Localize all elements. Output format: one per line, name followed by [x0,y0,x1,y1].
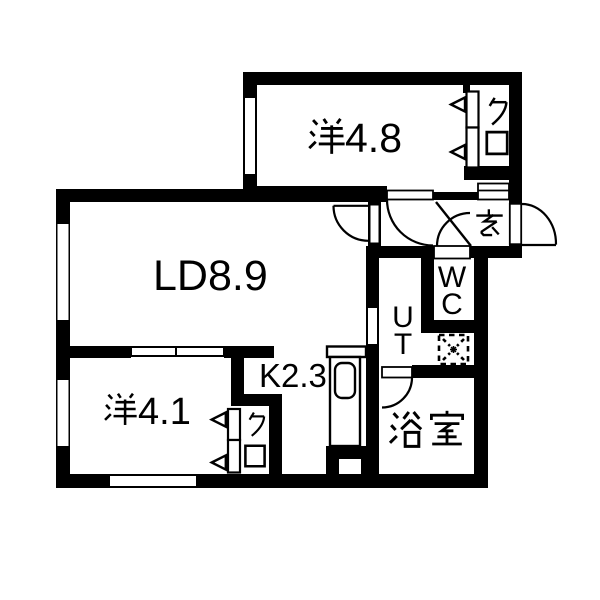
svg-text:K2.3: K2.3 [259,357,327,394]
svg-text:4.1: 4.1 [138,391,191,433]
svg-text:T: T [394,328,412,361]
svg-text:LD8.9: LD8.9 [153,252,268,300]
svg-text:4.8: 4.8 [345,115,402,161]
svg-text:C: C [441,288,463,321]
